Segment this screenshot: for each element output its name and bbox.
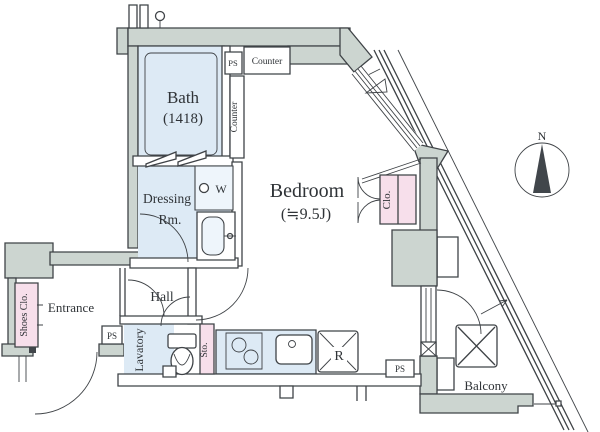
bedroom-label: Bedroom (270, 180, 345, 202)
wall-entrance-bottom-right (99, 344, 124, 356)
porch-rail (19, 356, 26, 382)
entrance-door-arc (35, 352, 97, 414)
floor-plan-drawing: N Bath (1418) Bedroom (≒9.5J) Dressing R… (0, 0, 600, 432)
wall-entrance-block (5, 243, 53, 278)
wall-top (128, 28, 350, 46)
washing-machine-dial (200, 184, 209, 193)
wall-entrance-top (50, 252, 140, 265)
wall-bottom-notch (280, 386, 293, 398)
balcony-area (437, 237, 497, 390)
wall-left (128, 46, 138, 248)
wall-bottom-ticks (357, 386, 366, 401)
vent-cap-icon (156, 12, 165, 21)
counter-side-label: Counter (230, 101, 240, 132)
north-needle-icon (533, 144, 551, 193)
floor-plan-page: N Bath (1418) Bedroom (≒9.5J) Dressing R… (0, 0, 600, 432)
ps-label-kitchen: PS (395, 364, 405, 374)
railing-post (556, 401, 561, 406)
fridge-label: R (334, 349, 344, 364)
ps-label-top: PS (228, 58, 238, 68)
kitchen-sink-icon (276, 335, 312, 364)
wall-balcony-bottom (420, 394, 533, 413)
bedroom-size-label: (≒9.5J) (281, 206, 331, 223)
toilet-tank (168, 334, 196, 348)
wall-right-chunk (392, 230, 437, 286)
vanity-basin (202, 217, 224, 255)
bath-label: Bath (167, 88, 200, 107)
compass-north-label: N (538, 129, 547, 143)
entrance-step-line (120, 268, 125, 316)
dressing-label-line2: Rm. (159, 212, 182, 227)
drain-pan-outline (437, 358, 454, 390)
wall-right-lower (420, 356, 437, 394)
ac-unit-outline (437, 237, 458, 277)
wall-top-left-notch (117, 28, 128, 54)
bedroom-door-arc (196, 268, 248, 320)
lavatory-cabinet (163, 366, 176, 377)
vent-pipe-icon (140, 5, 148, 28)
wall-diagonal-upper (340, 28, 372, 72)
ps-label-lavatory: PS (107, 331, 117, 341)
vent-pipe-icon (129, 5, 137, 28)
balcony-label: Balcony (464, 378, 508, 393)
dressing-label-line1: Dressing (143, 191, 191, 206)
entrance-label: Entrance (48, 300, 94, 315)
washer-label: W (215, 182, 227, 196)
closet-double-doors (358, 177, 380, 223)
shoes-closet-label: Shoes Clo. (19, 293, 30, 336)
closet-label: Clo. (381, 190, 393, 209)
hall-label: Hall (150, 289, 173, 304)
storage-label: Sto. (200, 342, 210, 357)
lavatory-label: Lavatory (132, 328, 146, 371)
compass: N (515, 129, 569, 197)
bath-size-label: (1418) (163, 111, 203, 127)
roof-pipes (129, 5, 165, 28)
counter-top-label: Counter (252, 57, 283, 67)
